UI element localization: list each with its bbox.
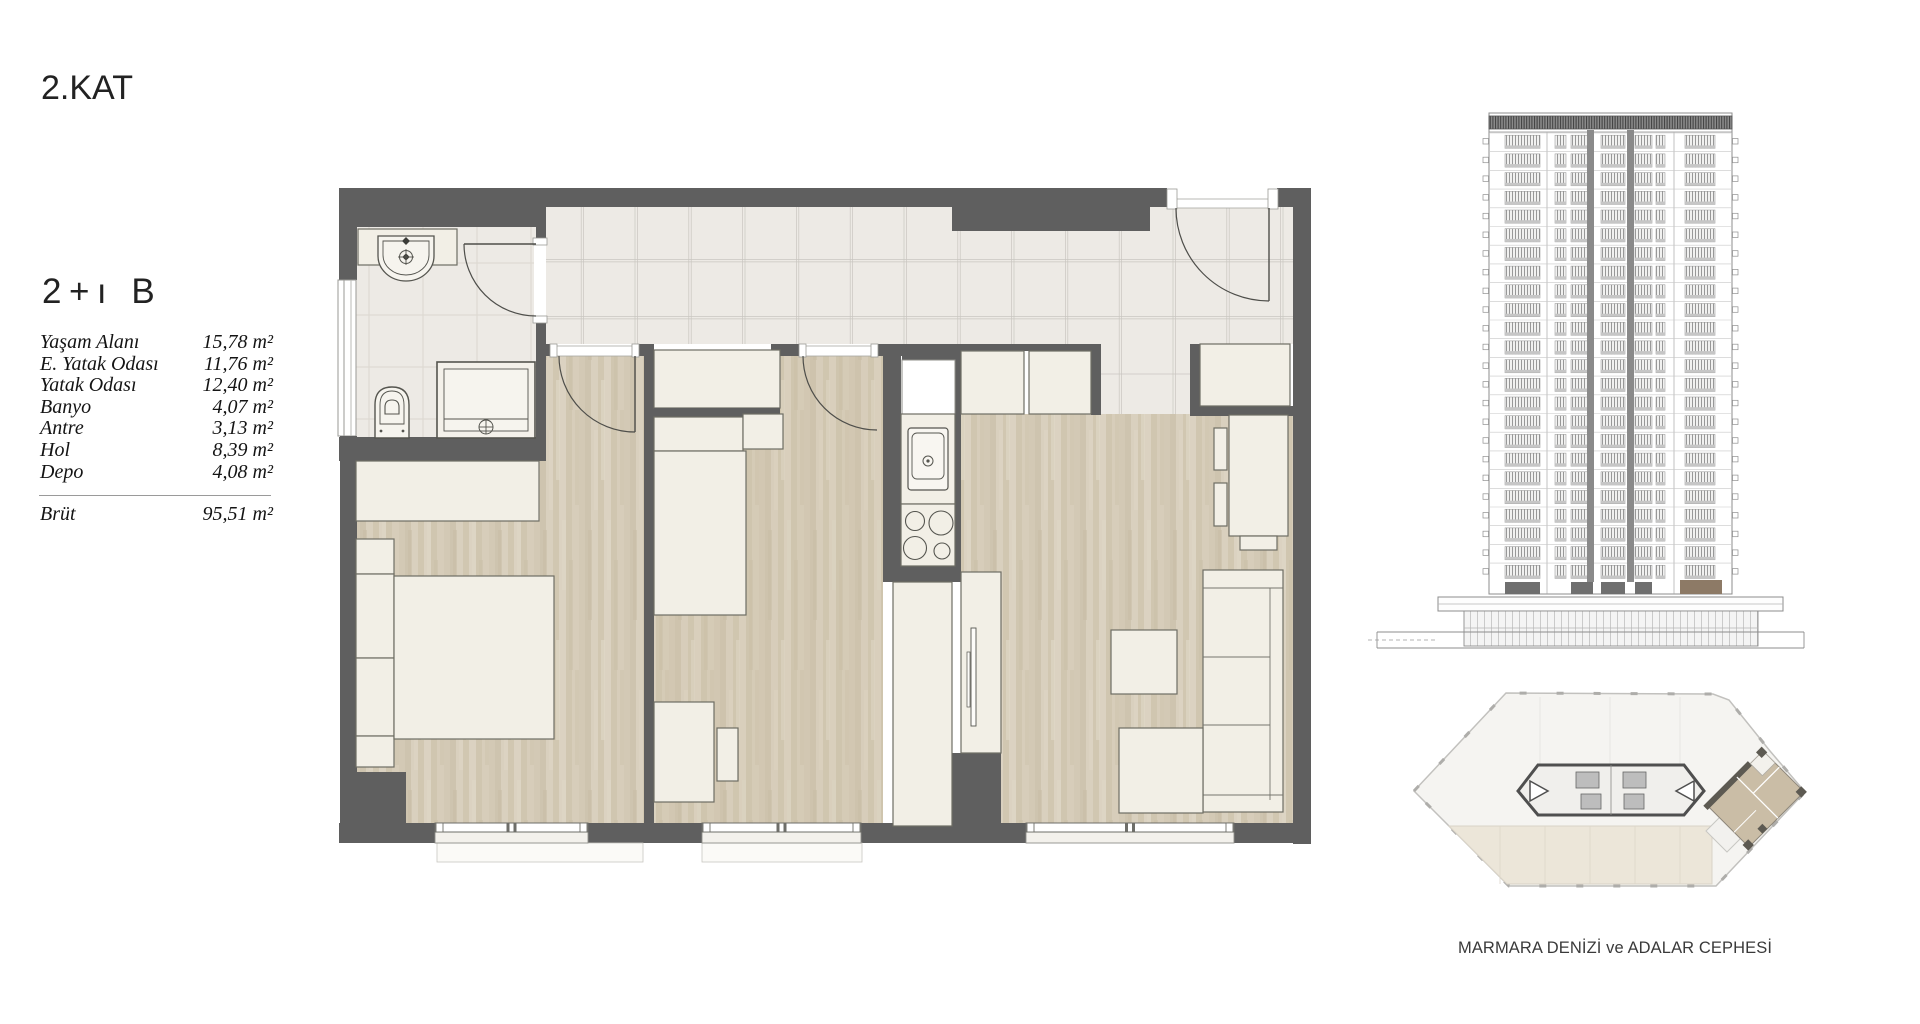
svg-text:MARMARA DENİZİ ve ADALAR CEPHE: MARMARA DENİZİ ve ADALAR CEPHESİ: [1458, 938, 1772, 957]
